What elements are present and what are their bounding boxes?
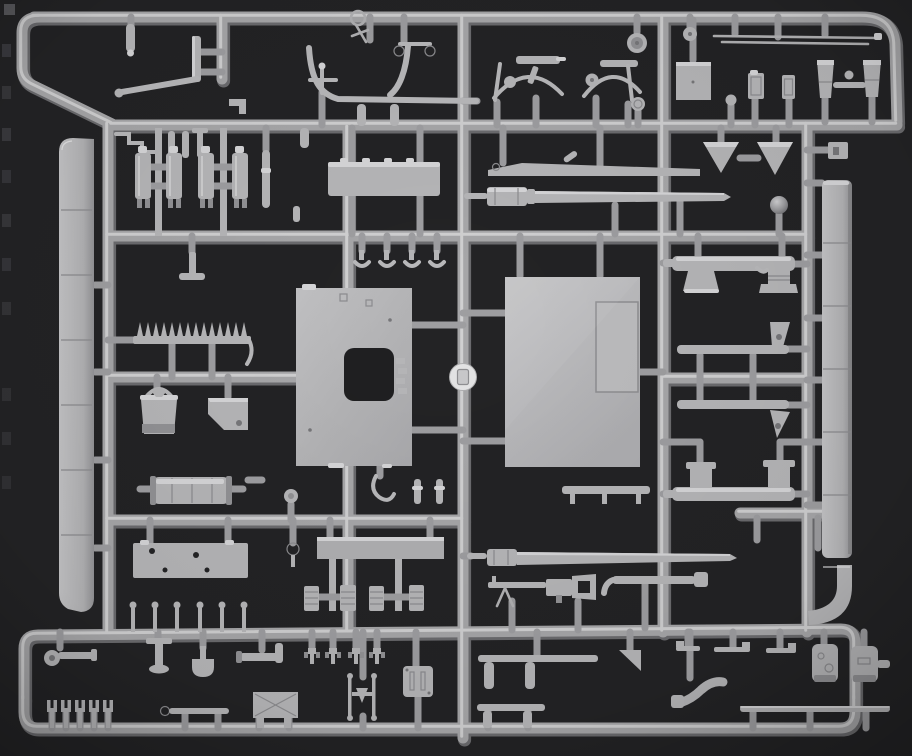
vignette-overlay xyxy=(0,0,912,756)
sprue-photo-canvas: Injection-molded light grey plastic mode… xyxy=(0,0,912,756)
sprue-photo: Injection-molded light grey plastic mode… xyxy=(0,0,912,756)
